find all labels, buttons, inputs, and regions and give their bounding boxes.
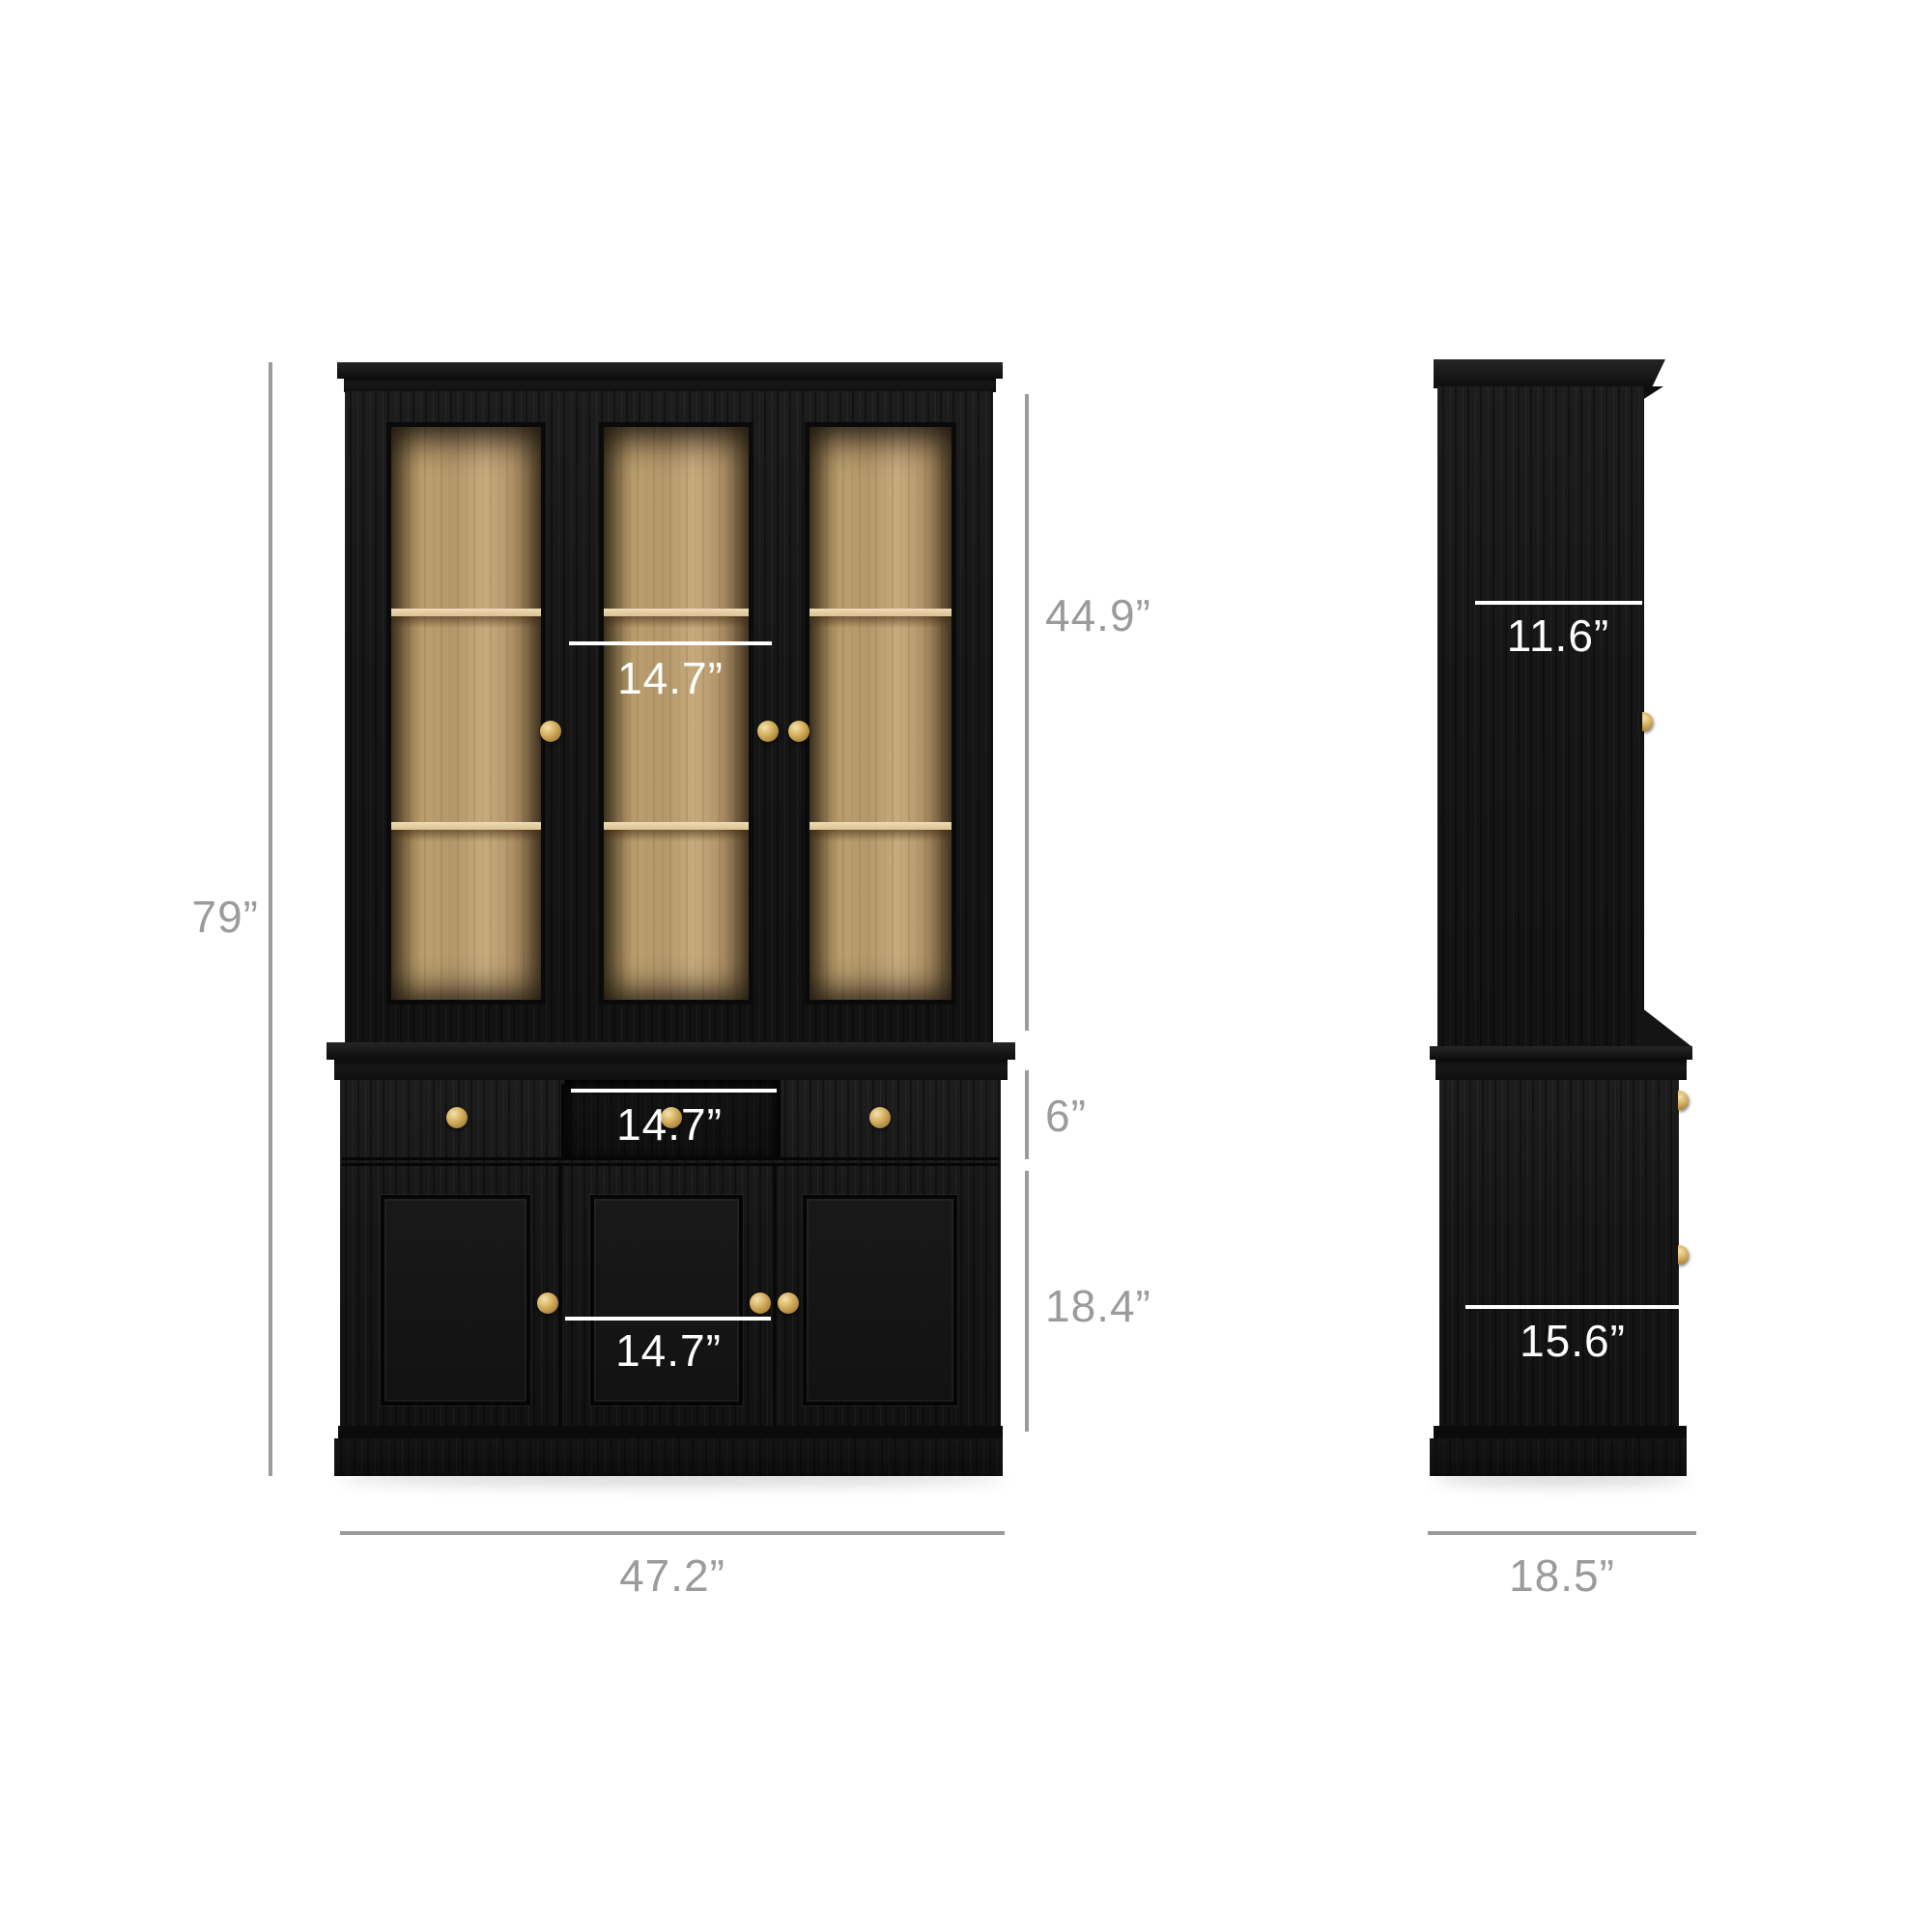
dim-hutch-door-width-line: [569, 641, 772, 645]
shelf: [391, 609, 541, 616]
floor-shadow: [338, 1472, 1005, 1486]
dim-overall-width-label: 47.2”: [576, 1550, 769, 1601]
dim-hutch-depth-label: 11.6”: [1462, 611, 1655, 661]
brass-knob: [869, 1107, 891, 1128]
side-counter-molding: [1430, 1046, 1692, 1060]
dim-hutch-height-label: 44.9”: [1045, 590, 1151, 640]
brass-knob: [446, 1107, 468, 1128]
dim-base-depth-line: [1465, 1305, 1679, 1309]
dim-door-section-height-line: [1025, 1171, 1029, 1432]
side-crown-molding: [1434, 359, 1665, 388]
dim-overall-depth-label: 18.5”: [1465, 1550, 1659, 1601]
dim-overall-height-label: 79”: [124, 892, 259, 942]
shelf-shadow: [810, 830, 952, 841]
brass-knob: [778, 1293, 799, 1314]
brass-knob-side: [1642, 712, 1653, 731]
dim-door-width-label: 14.7”: [572, 1325, 765, 1376]
front-counter-molding: [327, 1042, 1015, 1060]
dim-base-depth-label: 15.6”: [1476, 1316, 1669, 1366]
dim-overall-height-line: [269, 362, 272, 1476]
dim-drawer-width-line: [571, 1089, 777, 1093]
dim-hutch-door-width-label: 14.7”: [574, 653, 767, 703]
brass-knob-side: [1678, 1091, 1689, 1110]
front-crown-cove: [344, 378, 996, 392]
dimension-diagram: 79” 14.7” 44.9” 6” 14.7” 18.4” 14.7” 47.…: [0, 0, 1932, 1932]
shelf: [391, 822, 541, 830]
brass-knob: [757, 721, 779, 742]
brass-knob: [537, 1293, 558, 1314]
front-crown-molding: [337, 362, 1003, 379]
glass-door-pane-left: [386, 422, 546, 1005]
floor-shadow: [1434, 1472, 1689, 1486]
side-hutch-panel: [1437, 386, 1644, 1048]
drawer-bottom-seam: [342, 1157, 999, 1160]
side-base-panel: [1439, 1080, 1679, 1426]
side-plinth-step: [1434, 1426, 1687, 1438]
dim-hutch-depth-line: [1475, 601, 1642, 605]
door-panel-right: [803, 1195, 957, 1406]
front-plinth: [334, 1438, 1003, 1476]
dim-drawer-width-label: 14.7”: [573, 1099, 766, 1150]
drawer-seam: [561, 1084, 564, 1157]
brass-knob-side: [1678, 1245, 1689, 1264]
brass-knob: [750, 1293, 771, 1314]
door-panel-left: [381, 1195, 530, 1406]
front-counter-cove: [334, 1059, 1008, 1080]
shelf-shadow: [810, 616, 952, 628]
shelf: [810, 609, 952, 616]
glass-door-pane-middle: [599, 422, 753, 1005]
dim-door-section-height-label: 18.4”: [1045, 1281, 1151, 1331]
dim-drawer-height-line: [1025, 1070, 1029, 1159]
side-base-top-surface: [1640, 1007, 1692, 1047]
shelf: [810, 822, 952, 830]
shelf-shadow: [391, 830, 541, 841]
glass-door-pane-right: [805, 422, 956, 1005]
door-top-seam: [342, 1163, 999, 1166]
brass-knob: [788, 721, 810, 742]
door-stile: [771, 1166, 779, 1428]
door-stile: [556, 1166, 564, 1428]
shelf-shadow: [391, 616, 541, 628]
dim-overall-width-line: [340, 1531, 1005, 1535]
dim-overall-depth-line: [1428, 1531, 1696, 1535]
side-plinth: [1430, 1438, 1687, 1476]
side-counter-cove: [1435, 1059, 1687, 1080]
dim-hutch-height-line: [1025, 394, 1029, 1031]
dim-door-width-line: [565, 1317, 771, 1321]
shelf: [604, 822, 749, 830]
shelf-shadow: [604, 830, 749, 841]
brass-knob: [540, 721, 561, 742]
front-plinth-step: [338, 1426, 1003, 1438]
dim-drawer-height-label: 6”: [1045, 1091, 1087, 1141]
shelf: [604, 609, 749, 616]
shelf-shadow: [604, 616, 749, 628]
drawer-seam: [778, 1084, 781, 1157]
